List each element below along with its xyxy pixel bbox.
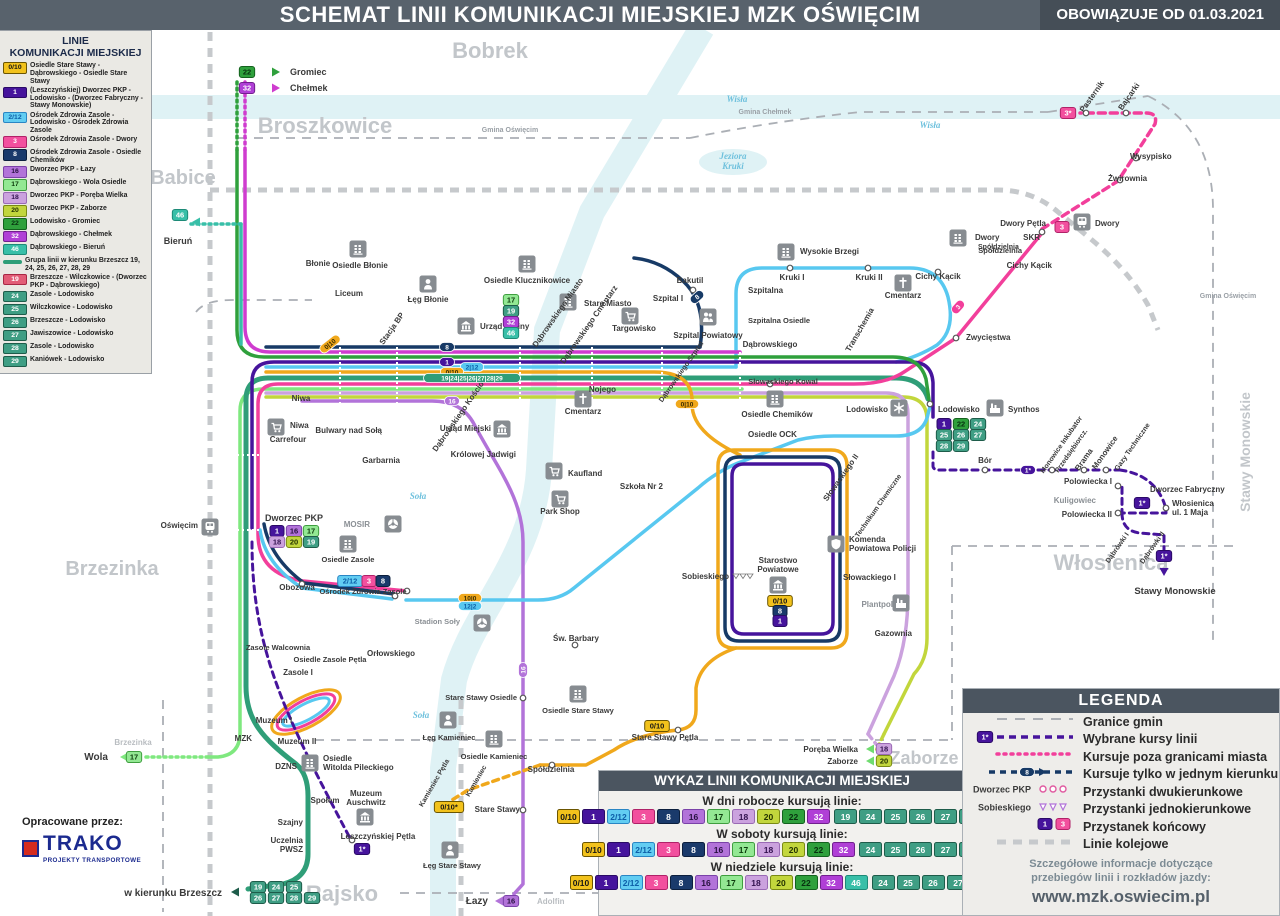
svg-text:2/12: 2/12: [343, 577, 358, 586]
line-badge: 16: [3, 166, 27, 177]
building-icon: [340, 536, 357, 553]
svg-text:26: 26: [254, 894, 262, 903]
header-bar: SCHEMAT LINII KOMUNIKACJI MIEJSKIEJ MZK …: [0, 0, 1280, 30]
stop-label: Cmentarz: [885, 291, 921, 300]
church-icon: [895, 275, 912, 292]
stop-label: Liceum: [335, 289, 363, 298]
stop-label: DZNS: [275, 762, 297, 771]
people-icon: [700, 309, 717, 326]
stop-label: Dwory: [1095, 219, 1120, 228]
one-way-stop: [747, 574, 753, 579]
region-label: Brzezinka: [65, 558, 159, 580]
schedule-heading: W niedziele kursują linie:: [599, 860, 965, 874]
svg-text:19: 19: [254, 883, 262, 892]
stop-label: Osiedle Chemików: [741, 410, 813, 419]
line-badge: 17: [303, 526, 318, 537]
transit-line-19-29: [246, 378, 340, 889]
stop-label: Polowiecka II: [1062, 510, 1112, 519]
line-badge: 19: [834, 809, 857, 824]
water-label: Soła: [410, 491, 427, 501]
stop-label: Osiedle Kamieniec: [461, 752, 528, 761]
stop-label: Starostwo: [759, 556, 798, 565]
svg-text:Sobieskiego: Sobieskiego: [978, 802, 1032, 812]
svg-text:28: 28: [940, 442, 948, 451]
line-badge: 1*: [977, 731, 992, 742]
stop-label: Kamieniec: [465, 764, 489, 798]
sidebar-line-item: 24Zasole - Lodowisko: [2, 291, 149, 302]
bank-icon: [770, 577, 787, 594]
stop-label: Dąbrowskiego: [743, 340, 798, 349]
svg-text:1: 1: [445, 359, 449, 366]
stop-label: Zasole I: [283, 668, 313, 677]
legend-item: Linie kolejowe: [963, 836, 1279, 854]
line-route-text: Wilczkowice - Lodowisko: [30, 304, 113, 312]
direction-lens: 8: [1020, 767, 1035, 776]
legend-label: Linie kolejowe: [1083, 837, 1168, 851]
line-badge: 1: [937, 419, 951, 430]
svg-text:25: 25: [290, 883, 298, 892]
sidebar-line-item: 16Dworzec PKP - Łazy: [2, 166, 149, 177]
stop-dot: [1103, 467, 1109, 473]
region-label: Bobrek: [452, 38, 529, 63]
line-badge: 29: [953, 441, 968, 452]
line-badge: 18: [269, 537, 284, 548]
stop-label: Chełmek: [290, 83, 329, 93]
line-badge: 17: [732, 842, 755, 857]
sidebar-line-item: 27Jawiszowice - Lodowisko: [2, 330, 149, 341]
stop-label: Osiedle: [323, 754, 352, 763]
stop-label: Urząd Miejski: [440, 424, 491, 433]
municipal-boundary: [196, 300, 312, 312]
line-badge: 28: [286, 893, 301, 904]
one-way-stop: [740, 574, 746, 579]
one-way-stop: [733, 574, 739, 579]
stop-dot: [520, 807, 526, 813]
svg-text:1*: 1*: [1025, 467, 1032, 474]
stop-label: Wysokie Brzegi: [800, 247, 859, 256]
line-route-text: Kaniówek - Lodowisko: [30, 356, 104, 364]
stop-label: Bakutil: [677, 276, 704, 285]
line-badge: 32: [832, 842, 855, 857]
stop-label: Bieruń: [164, 236, 193, 246]
direction-arrow: [272, 84, 280, 93]
stop-label: Uczelnia: [271, 836, 304, 845]
line-badge: 3: [1055, 222, 1069, 233]
bank-icon: [458, 318, 475, 335]
line-badge: 0/10: [768, 596, 793, 607]
stop-label: Synthos: [1008, 405, 1040, 414]
svg-text:8: 8: [381, 577, 385, 586]
credits-block: Opracowane przez: TRAKO PROJEKTY TRANSPO…: [22, 816, 152, 864]
stop-label: MOSIR: [344, 520, 370, 529]
stop-label: Cmentarz: [565, 407, 601, 416]
turning-loop: [265, 681, 346, 743]
direction-lens: 3: [950, 298, 967, 315]
stop-label: Technikum Chemiczne: [854, 473, 903, 539]
line-badge: 1: [1038, 819, 1052, 830]
cart-icon: [552, 491, 569, 508]
stop-label: Szpital I: [653, 294, 683, 303]
stop-label: Osiedle Błonie: [332, 261, 388, 270]
credits-label: Opracowane przez:: [22, 816, 152, 828]
legend-label: Przystanki dwukierunkowe: [1083, 785, 1243, 799]
stop-label: Leszczyńskiej Pętla: [341, 832, 416, 841]
region-label: Gmina Oświęcim: [482, 127, 538, 134]
direction-lens: 16: [519, 663, 528, 678]
line-badge: 20: [757, 809, 780, 824]
line-badge: 18: [732, 809, 755, 824]
line-badge: 32: [807, 809, 830, 824]
stop-label: Poręba Wielka: [803, 745, 858, 754]
line-badge: 28: [936, 441, 951, 452]
line-badge: 16: [682, 809, 705, 824]
stop-dot: [1039, 229, 1045, 235]
line-badge: 32: [3, 231, 27, 242]
line-badge: 46: [3, 244, 27, 255]
line-badge: 24: [872, 875, 895, 890]
sidebar-line-item: 19Brzeszcze - Wilczkowice - (Dworzec PKP…: [2, 274, 149, 289]
direction-arrow: [866, 757, 874, 766]
line-route-text: Grupa linii w kierunku Brzeszcz 19, 24, …: [25, 257, 149, 272]
svg-text:0/10: 0/10: [650, 722, 665, 731]
svg-text:8: 8: [445, 344, 449, 351]
stop-label: Kuligowiec: [1054, 496, 1097, 505]
sidebar-line-item: 25Wilczkowice - Lodowisko: [2, 304, 149, 315]
legend-label: Przystanki jednokierunkowe: [1083, 802, 1251, 816]
line-badge: 20: [3, 205, 27, 216]
line-badge: 8: [773, 606, 787, 617]
direction-lens: 1*: [1021, 466, 1036, 475]
stop-label: Dwory: [975, 233, 1000, 242]
svg-text:27: 27: [974, 431, 982, 440]
sidebar-line-item: 29Kaniówek - Lodowisko: [2, 356, 149, 367]
transit-line-16: [302, 401, 523, 894]
stop-label: Stadion Soły: [415, 617, 461, 626]
svg-text:16: 16: [507, 897, 515, 906]
sidebar-line-item: 22Lodowisko - Gromiec: [2, 218, 149, 229]
stop-label: Orłowskiego: [367, 649, 415, 658]
stop-label: Garbarnia: [362, 456, 400, 465]
train-icon: [1074, 214, 1091, 231]
sidebar-line-item: 26Brzeszcze - Lodowisko: [2, 317, 149, 328]
direction-lens: 1: [440, 358, 455, 367]
stop-label: Osiedle Stare Stawy: [542, 706, 615, 715]
stop-label: Brzezinka: [114, 738, 152, 747]
direction-lens: 16: [445, 397, 460, 406]
svg-text:1: 1: [942, 420, 946, 429]
line-badge: 24: [859, 842, 882, 857]
person-icon: [440, 712, 457, 729]
line-badge: 24: [268, 882, 283, 893]
transit-line-20: [266, 397, 927, 734]
line-badge: 17: [126, 752, 141, 763]
line-badge: 32: [820, 875, 843, 890]
stop-label: Osiedle Klucznikowice: [484, 276, 571, 285]
sidebar-line-item: 2/12Ośrodek Zdrowia Zasole - Lodowisko -…: [2, 112, 149, 135]
sidebar-line-item: Grupa linii w kierunku Brzeszcz 19, 24, …: [2, 257, 149, 272]
legend-label: Przystanek końcowy: [1083, 820, 1206, 834]
line-badge: 32: [239, 83, 254, 94]
svg-text:8: 8: [1025, 769, 1029, 776]
line-badge: 22: [953, 419, 968, 430]
line-badge: 0/10: [557, 809, 580, 824]
line-badge: 1: [773, 616, 787, 627]
stop-label: Szkoła Nr 2: [620, 482, 664, 491]
line-route-text: Dąbrowskiego - Chełmek: [30, 231, 112, 239]
svg-text:29: 29: [957, 442, 965, 451]
building-icon: [767, 391, 784, 408]
line-badge: 28: [3, 343, 27, 354]
line-route-text: Ośrodek Zdrowia Zasole - Dwory: [30, 136, 137, 144]
line-badge: 20: [782, 842, 805, 857]
sidebar-line-item: 8Ośrodek Zdrowia Zasole - Osiedle Chemik…: [2, 149, 149, 164]
line-badge: 25: [884, 809, 907, 824]
line-badge: 26: [909, 809, 932, 824]
line-badge: 25: [897, 875, 920, 890]
line-badge: 1: [607, 842, 630, 857]
stop-label: Gazy Techniczne: [1114, 422, 1152, 472]
line-badge: 16: [707, 842, 730, 857]
ball-icon: [474, 615, 491, 632]
svg-text:32: 32: [243, 84, 251, 93]
building-icon: [350, 241, 367, 258]
line-badge: 3: [645, 875, 668, 890]
stop-label: Niwa: [290, 421, 309, 430]
line-badge: 26: [953, 430, 968, 441]
line-badge: 8: [376, 576, 390, 587]
direction-arrow: [272, 68, 280, 77]
line-route-text: Osiedle Stare Stawy - Dąbrowskiego - Osi…: [30, 62, 149, 85]
page-title: SCHEMAT LINII KOMUNIKACJI MIEJSKIEJ MZK …: [0, 2, 1040, 28]
stop-label: Carrefour: [270, 435, 306, 444]
line-badge: 32: [503, 317, 518, 328]
svg-text:1*: 1*: [358, 845, 365, 854]
svg-text:3: 3: [1060, 223, 1064, 232]
sidebar-line-item: 28Zasole - Lodowisko: [2, 343, 149, 354]
legend-label: Kursuje tylko w jednym kierunku: [1083, 767, 1278, 781]
line-badge: 16: [695, 875, 718, 890]
stop-label: Polowiecka I: [1064, 477, 1112, 486]
line-badge: 22: [3, 218, 27, 229]
validity-badge: OBOWIĄZUJE OD 01.03.2021: [1040, 0, 1280, 30]
svg-text:24: 24: [272, 883, 281, 892]
railway-line: [210, 190, 1158, 330]
water-label: Wisła: [727, 94, 748, 104]
stop-label: Wysypisko: [1130, 152, 1172, 161]
transit-map-page: { "header": { "title": "SCHEMAT LINII KO…: [0, 0, 1280, 916]
region-label: Zaborze: [889, 748, 958, 768]
region-label: Gmina Chełmek: [739, 109, 792, 116]
stop-label: Stawy Monowskie: [1134, 586, 1215, 597]
line-route-text: Lodowisko - Gromiec: [30, 218, 100, 226]
line-badge: 1: [3, 87, 27, 98]
svg-text:0|10: 0|10: [681, 401, 694, 408]
line-badge: 16: [286, 526, 301, 537]
svg-text:27: 27: [272, 894, 280, 903]
svg-text:1: 1: [1043, 820, 1047, 829]
line-badge: 46: [845, 875, 868, 890]
sidebar-line-item: 17Dąbrowskiego - Wola Osiedle: [2, 179, 149, 190]
line-badge: 22: [239, 67, 254, 78]
stop-label: Bulwary nad Sołą: [315, 426, 382, 435]
svg-text:1: 1: [778, 617, 782, 626]
svg-text:22: 22: [243, 68, 251, 77]
svg-text:1*: 1*: [981, 732, 988, 741]
building-icon: [778, 244, 795, 261]
direction-lens: 0|10: [675, 400, 698, 409]
stop-label: Dworzec Fabryczny: [1150, 485, 1225, 494]
svg-text:24: 24: [974, 420, 983, 429]
stop-label: Gazownia: [875, 629, 913, 638]
line-route-text: Dąbrowskiego - Wola Osiedle: [30, 179, 126, 187]
stop-label: Szpital Powiatowy: [673, 331, 743, 340]
website-link[interactable]: www.mzk.oswiecim.pl: [963, 887, 1279, 907]
svg-text:12|2: 12|2: [464, 603, 477, 610]
stop-label: Witolda Pileckiego: [323, 763, 394, 772]
line-badge: 20: [876, 756, 891, 767]
line-badge: 27: [268, 893, 283, 904]
line-badge: 3: [632, 809, 655, 824]
line-badge: 27: [934, 842, 957, 857]
stop-label: Wola: [84, 752, 108, 763]
svg-text:17: 17: [507, 296, 515, 305]
line-badge: 25: [3, 304, 27, 315]
svg-text:8: 8: [778, 607, 782, 616]
line-badge: 2/12: [3, 112, 27, 123]
stop-dot: [572, 642, 578, 648]
stop-label: Powiatowa Policji: [849, 544, 916, 553]
line-badge: 26: [922, 875, 945, 890]
stop-label: Zwycięstwa: [966, 333, 1011, 342]
svg-text:Dworzec PKP: Dworzec PKP: [973, 785, 1031, 795]
line-badge: 2/12: [338, 576, 363, 587]
building-icon: [519, 256, 536, 273]
stop-label: Targowisko: [612, 324, 656, 333]
ball-icon: [385, 516, 402, 533]
stop-label: Kruki I: [780, 273, 805, 282]
stop-label: Muzeum: [350, 789, 382, 798]
svg-text:29: 29: [308, 894, 316, 903]
stop-label: Szpitalna Osiedle: [748, 316, 810, 325]
svg-text:3*: 3*: [1064, 109, 1071, 118]
svg-text:22: 22: [957, 420, 965, 429]
stop-dot: [690, 287, 696, 293]
stop-label: Dwory Pętla: [1000, 219, 1046, 228]
svg-text:16: 16: [290, 527, 298, 536]
stop-label: Nojego: [589, 385, 616, 394]
svg-text:18: 18: [273, 538, 281, 547]
stop-label: SKR: [1023, 233, 1040, 242]
svg-text:19|24|25|26|27|28|29: 19|24|25|26|27|28|29: [441, 375, 503, 382]
line-badge: 22: [795, 875, 818, 890]
line-route-text: Zasole - Lodowisko: [30, 291, 94, 299]
line-badge: 20: [770, 875, 793, 890]
sidebar-line-item: 0/10Osiedle Stare Stawy - Dąbrowskiego -…: [2, 62, 149, 85]
line-badge: 19: [3, 274, 27, 285]
line-badge: 8: [670, 875, 693, 890]
svg-text:20: 20: [880, 757, 888, 766]
line-badge: 18: [757, 842, 780, 857]
stop-label: Stare Stawy: [475, 805, 521, 814]
stop-label: Stare Stawy Osiedle: [445, 693, 517, 702]
line-badge: 27: [934, 809, 957, 824]
stop-dot: [1163, 505, 1169, 511]
line-badge: 3: [1056, 819, 1070, 830]
stop-dot: [1115, 483, 1121, 489]
line-badge: 1*: [1156, 551, 1171, 562]
stop-label: Sobieskiego: [682, 572, 729, 581]
stop-label: Ośrodek Zdrowia Zasole: [319, 587, 406, 596]
direction-lens: 12|2: [458, 602, 481, 611]
line-badge: 0/10: [570, 875, 593, 890]
sidebar-line-item: 32Dąbrowskiego - Chełmek: [2, 231, 149, 242]
line-route-text: (Leszczyńskiej) Dworzec PKP - Lodowisko …: [30, 87, 149, 110]
stop-dot: [953, 335, 959, 341]
line-badge: 2/12: [620, 875, 643, 890]
svg-text:0/10*: 0/10*: [440, 803, 458, 812]
line-badge: 22: [782, 809, 805, 824]
stop-label: Zasole Walcownia: [246, 643, 311, 652]
stop-label: Cichy Kącik: [1007, 261, 1053, 270]
svg-text:1: 1: [275, 527, 279, 536]
line-badge: 1: [582, 809, 605, 824]
stop-label: Park Shop: [540, 507, 580, 516]
person-icon: [420, 276, 437, 293]
line-badge: 1*: [354, 844, 369, 855]
line-badge: 19: [303, 537, 318, 548]
direction-lens: 8: [440, 343, 455, 352]
svg-text:26: 26: [957, 431, 965, 440]
line-badge: 29: [304, 893, 319, 904]
line-route-text: Ośrodek Zdrowia Zasole - Lodowisko - Ośr…: [30, 112, 149, 135]
direction-lens: 2|12: [460, 363, 483, 372]
person-icon: [442, 842, 459, 859]
line-badge: 0/10: [3, 62, 27, 73]
line-badge: 20: [286, 537, 301, 548]
factory-icon: [893, 595, 910, 612]
line-badge: 25: [286, 882, 301, 893]
line-badge: 8: [682, 842, 705, 857]
line-route-text: Dworzec PKP - Poręba Wielka: [30, 192, 127, 200]
line-badge: 26: [3, 317, 27, 328]
line-badge: 2/12: [607, 809, 630, 824]
svg-text:20: 20: [290, 538, 298, 547]
svg-text:17: 17: [130, 753, 138, 762]
stop-label: Bór: [978, 456, 992, 465]
line-route-text: Brzeszcze - Wilczkowice - (Dworzec PKP -…: [30, 274, 149, 289]
stop-label: Św. Barbary: [553, 634, 599, 643]
line-badge: 0/10*: [434, 802, 463, 813]
line-route-text: Zasole - Lodowisko: [30, 343, 94, 351]
stop-label: Muzeum I: [256, 716, 292, 725]
stop-label: Oświęcim: [161, 521, 198, 530]
legend-note: Szczegółowe informacje dotycząceprzebieg…: [963, 857, 1279, 886]
line-list-panel: LINIE KOMUNIKACJI MIEJSKIEJ 0/10Osiedle …: [0, 30, 152, 374]
stop-label: Słowackiego Kowal: [748, 377, 818, 386]
line-badge: 0/10: [645, 721, 670, 732]
stop-label: MZK: [235, 734, 253, 743]
stop-label: Szpitalna: [748, 286, 784, 295]
cart-icon: [546, 463, 563, 480]
line-badge: 26: [250, 893, 265, 904]
region-label: Gmina Oświęcim: [1200, 293, 1256, 300]
sidebar-line-item: 18Dworzec PKP - Poręba Wielka: [2, 192, 149, 203]
sidebar-line-item: 20Dworzec PKP - Zaborze: [2, 205, 149, 216]
stop-label: Dworzec PKP: [265, 513, 323, 523]
stop-label: Obozowa: [279, 583, 315, 592]
stop-label: Słowackiego I: [843, 573, 896, 582]
line-route-text: Dworzec PKP - Zaborze: [30, 205, 107, 213]
